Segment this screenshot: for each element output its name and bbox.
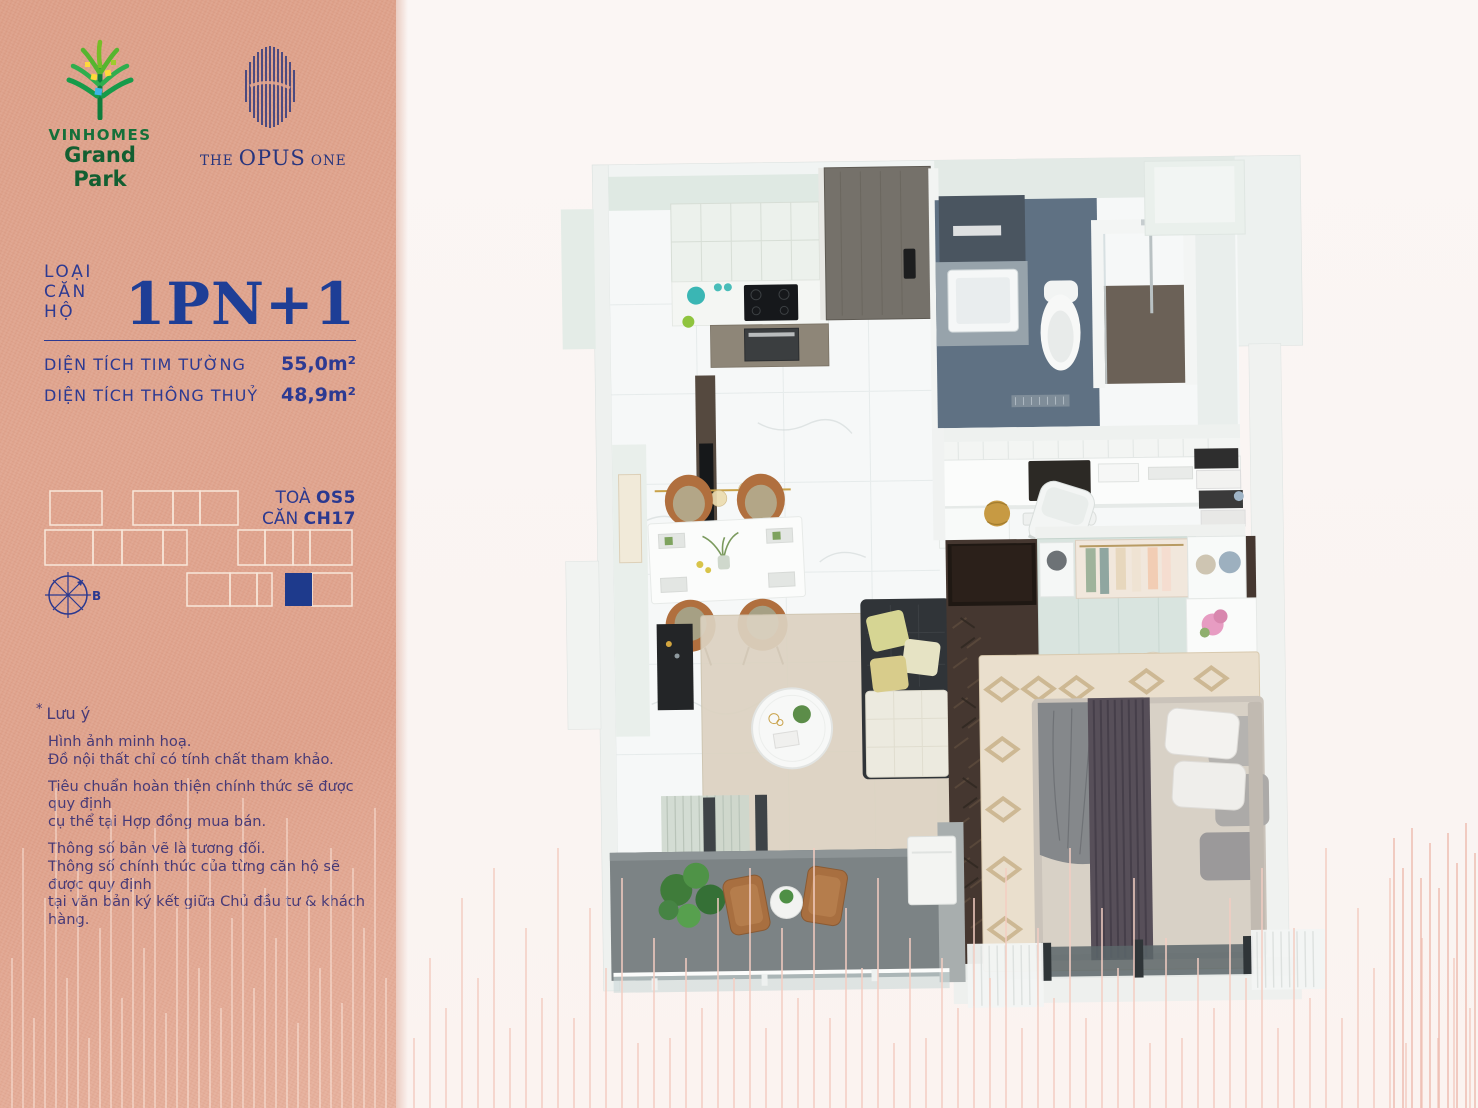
- sidebar-panel: VINHOMES Grand Park THE OPUS ONE LOẠI CĂ…: [0, 0, 396, 1108]
- coffee-table: [752, 688, 833, 769]
- compass-north-label: B: [92, 589, 101, 603]
- panel-edge-shadow: [396, 0, 408, 1108]
- media-console: [657, 624, 694, 710]
- shower-floor: [1098, 285, 1187, 384]
- bottom-line-texture: [408, 808, 1478, 1108]
- vinhomes-tree-icon: [61, 36, 139, 120]
- vinhomes-wordmark: VINHOMES: [40, 126, 160, 144]
- compass-icon: [45, 572, 91, 618]
- unit-type-label: LOẠI CĂN HỘ: [44, 262, 113, 331]
- sidebar-line-texture: [0, 688, 396, 1108]
- opus-one-wordmark: THE OPUS ONE: [200, 146, 340, 170]
- dining-table: [648, 516, 806, 603]
- tower-unit-label: TOÀ OS5 CĂN CH17: [262, 488, 356, 531]
- area-row-gross: DIỆN TÍCH TIM TƯỜNG 55,0m²: [44, 353, 356, 375]
- wall-art: [618, 474, 641, 562]
- door-lock: [903, 249, 915, 279]
- unit-info: LOẠI CĂN HỘ 1PN+1 DIỆN TÍCH TIM TƯỜNG 55…: [44, 262, 356, 415]
- pillow: [1164, 707, 1240, 759]
- opus-one-glyph-icon: [242, 42, 298, 130]
- divider: [44, 340, 356, 341]
- vinhomes-logo: VINHOMES Grand Park: [40, 36, 160, 191]
- storage-box: [1194, 448, 1238, 469]
- entry-door: [818, 166, 932, 320]
- bathroom: [928, 156, 1248, 442]
- cooktop: [744, 284, 798, 321]
- opus-one-logo: THE OPUS ONE: [200, 36, 340, 170]
- unit-type-value: 1PN+1: [125, 278, 356, 331]
- wardrobe: [1037, 537, 1197, 659]
- brand-logos: VINHOMES Grand Park THE OPUS ONE: [40, 36, 340, 191]
- pillow: [1172, 761, 1246, 811]
- area-row-net: DIỆN TÍCH THÔNG THUỶ 48,9m²: [44, 384, 356, 406]
- selected-unit-cell: [285, 573, 312, 606]
- sofa: [860, 598, 953, 779]
- floor-key-plan: B TOÀ OS5 CĂN CH17: [44, 486, 356, 632]
- vinhomes-subbrand: Grand Park: [40, 143, 160, 191]
